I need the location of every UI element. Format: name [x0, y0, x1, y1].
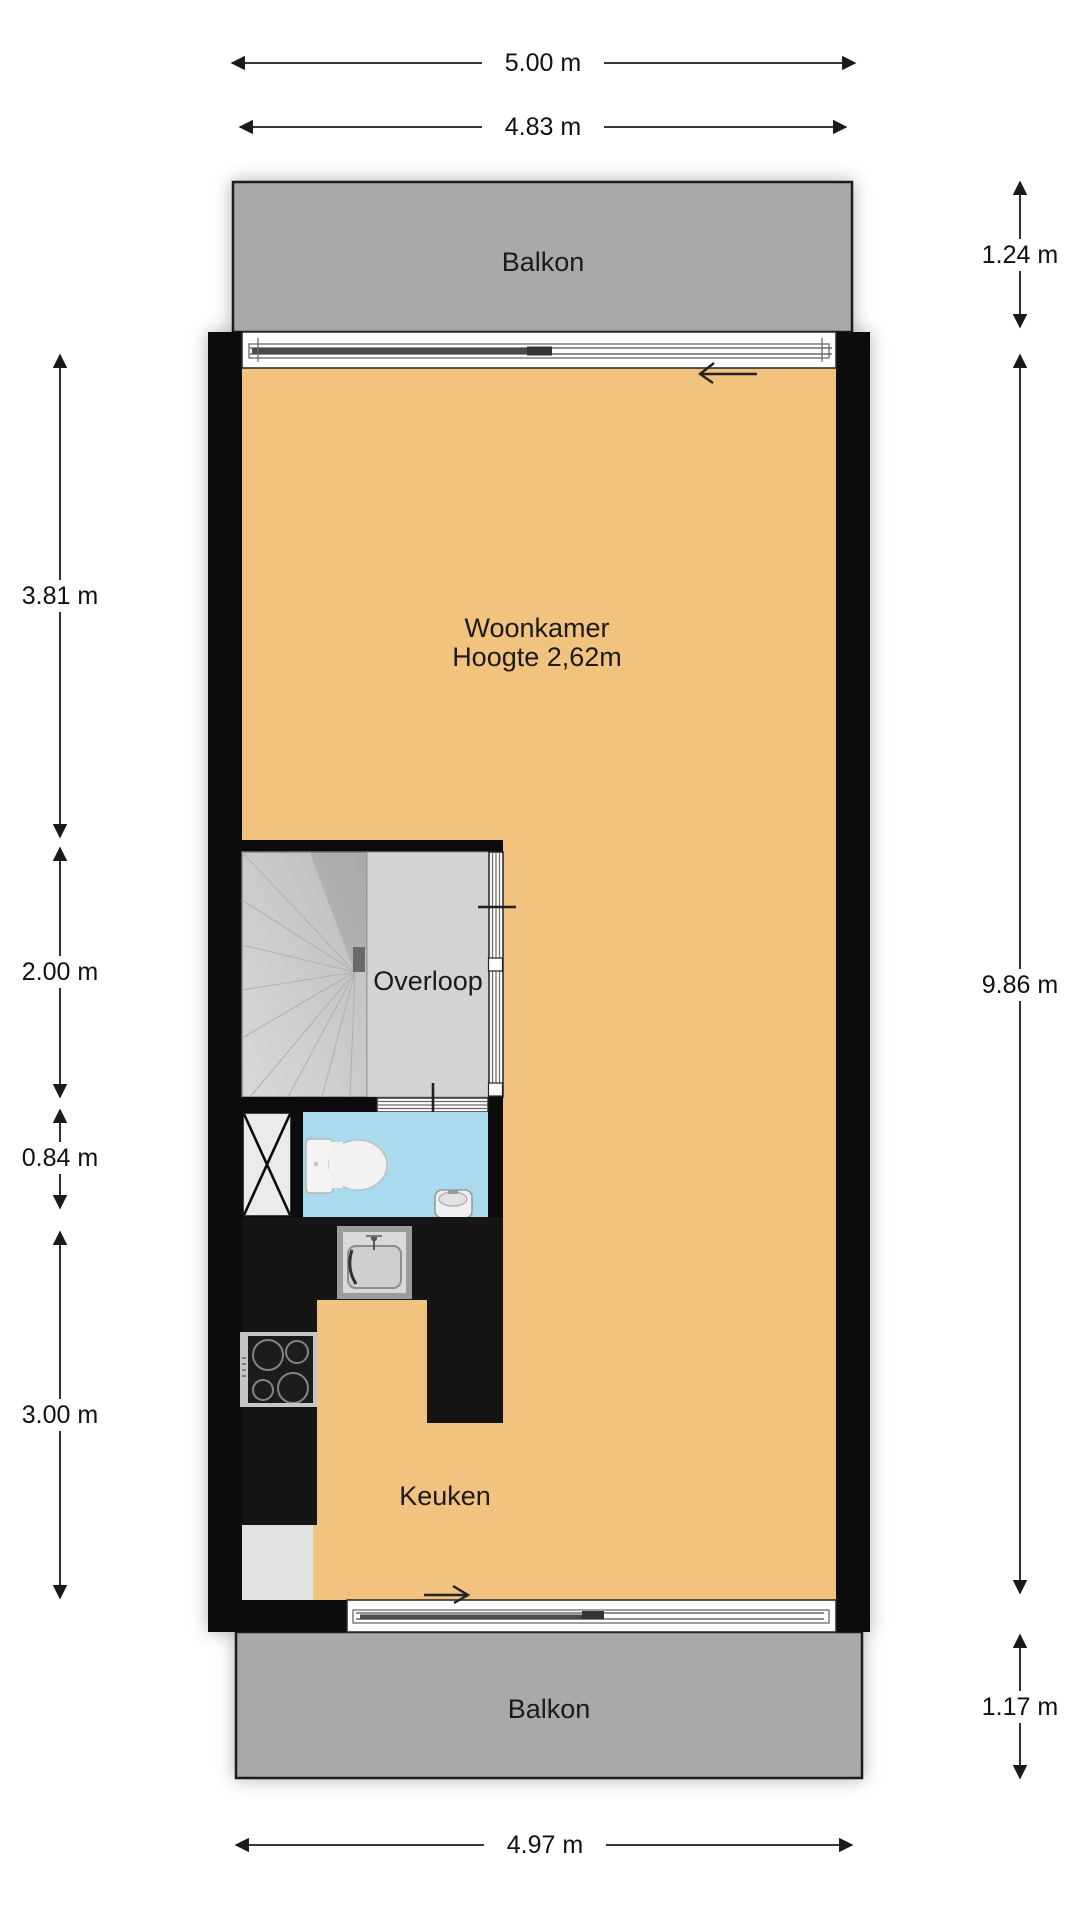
- dimension-top-inner: 4.83 m: [240, 110, 846, 144]
- partition-mullion: [489, 1083, 503, 1096]
- toilet-icon: [306, 1139, 387, 1193]
- dim-right-balcony-top-label: 1.24 m: [982, 241, 1058, 269]
- dim-top-inner-label: 4.83 m: [505, 113, 581, 141]
- dim-top-outer-label: 5.00 m: [505, 49, 581, 77]
- landing-label: Overloop: [373, 966, 483, 996]
- cooktop-icon: [240, 1332, 317, 1407]
- wall-toilet-right: [488, 1112, 503, 1225]
- dimension-left-living: 3.81 m: [12, 355, 108, 837]
- dimension-left-toilet: 0.84 m: [12, 1110, 108, 1208]
- partition-mullion: [489, 958, 503, 971]
- wall-right: [836, 332, 870, 1632]
- sliding-door-top: [242, 332, 836, 368]
- floor-plan-svg: Balkon Woonkamer Hoogte 2,62m Overloop K…: [0, 0, 1080, 1920]
- dimension-left-landing: 2.00 m: [12, 848, 108, 1097]
- kitchen-label: Keuken: [399, 1481, 491, 1511]
- kitchen-sink-icon: [337, 1226, 412, 1299]
- living-room-label: Woonkamer: [464, 613, 609, 643]
- building-group: Balkon Woonkamer Hoogte 2,62m Overloop K…: [208, 182, 870, 1778]
- wall-landing-top: [242, 840, 503, 852]
- stair-newel-post: [353, 947, 365, 972]
- dim-left-living-label: 3.81 m: [22, 582, 98, 610]
- shaft: [242, 1112, 292, 1217]
- wall-stub: [488, 1097, 503, 1112]
- living-room-height-label: Hoogte 2,62m: [452, 642, 622, 672]
- floorplan-page: Balkon Woonkamer Hoogte 2,62m Overloop K…: [0, 0, 1080, 1920]
- dimension-top-outer: 5.00 m: [232, 46, 855, 80]
- balcony-top-label: Balkon: [502, 247, 585, 277]
- balcony-bottom-label: Balkon: [508, 1694, 591, 1724]
- kitchen-counter-peninsula: [427, 1300, 503, 1423]
- dim-left-landing-label: 2.00 m: [22, 958, 98, 986]
- dimension-right-balcony-top: 1.24 m: [972, 182, 1068, 327]
- dimension-left-kitchen: 3.00 m: [12, 1232, 108, 1598]
- dim-left-toilet-label: 0.84 m: [22, 1144, 98, 1172]
- wall-bottom-left: [208, 1600, 347, 1632]
- dimension-right-total: 9.86 m: [972, 355, 1068, 1593]
- hand-basin-icon: [435, 1190, 472, 1218]
- wall-left: [208, 332, 242, 1632]
- dimension-bottom: 4.97 m: [236, 1828, 852, 1862]
- dim-bottom-label: 4.97 m: [507, 1831, 583, 1859]
- kitchen-appliance-block: [242, 1525, 313, 1600]
- dim-left-kitchen-label: 3.00 m: [22, 1401, 98, 1429]
- spiral-staircase: [242, 852, 367, 1097]
- sliding-door-bottom: [347, 1600, 836, 1632]
- dimension-right-balcony-bottom: 1.17 m: [972, 1635, 1068, 1778]
- dim-right-balcony-bottom-label: 1.17 m: [982, 1693, 1058, 1721]
- wall-under-stairs: [242, 1097, 377, 1112]
- dim-right-total-label: 9.86 m: [982, 971, 1058, 999]
- wall-shaft-divider: [292, 1112, 303, 1217]
